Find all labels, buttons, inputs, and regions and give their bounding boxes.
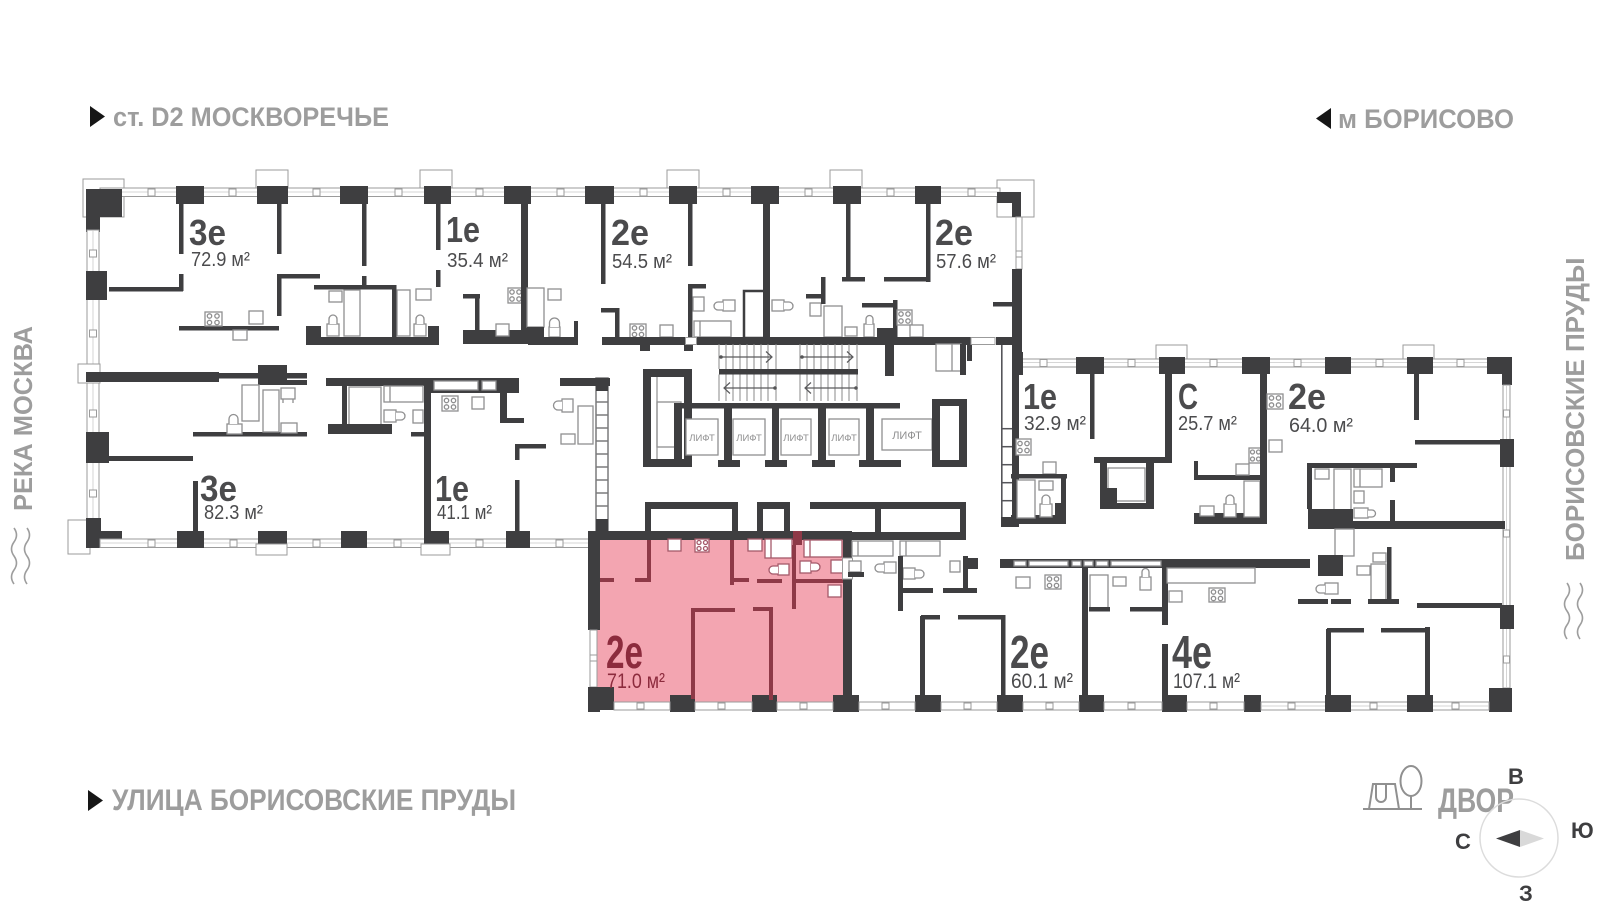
svg-text:2е: 2е [611,212,649,253]
svg-text:ЛИФТ: ЛИФТ [892,430,922,442]
svg-text:41.1 м²: 41.1 м² [437,502,492,524]
svg-text:64.0 м²: 64.0 м² [1289,415,1353,437]
svg-text:ЛИФТ: ЛИФТ [689,433,715,444]
svg-text:Ю: Ю [1571,818,1594,843]
svg-text:ЛИФТ: ЛИФТ [783,433,809,444]
svg-text:УЛИЦА БОРИСОВСКИЕ ПРУДЫ: УЛИЦА БОРИСОВСКИЕ ПРУДЫ [112,784,516,817]
svg-text:РЕКА МОСКВА: РЕКА МОСКВА [8,326,38,511]
svg-text:2е: 2е [1288,376,1326,417]
svg-text:82.3 м²: 82.3 м² [204,502,263,524]
svg-text:72.9 м²: 72.9 м² [191,249,250,271]
svg-text:54.5 м²: 54.5 м² [612,251,672,273]
svg-text:В: В [1508,764,1524,789]
svg-text:32.9 м²: 32.9 м² [1024,413,1086,435]
svg-text:С: С [1455,829,1471,854]
svg-text:1е: 1е [446,209,480,250]
svg-text:57.6 м²: 57.6 м² [936,251,996,273]
svg-text:60.1 м²: 60.1 м² [1011,670,1073,693]
svg-text:35.4 м²: 35.4 м² [447,250,508,272]
svg-text:ДВОР: ДВОР [1438,782,1514,820]
svg-text:З: З [1519,881,1533,906]
svg-text:107.1 м²: 107.1 м² [1173,670,1240,693]
svg-text:2е: 2е [935,212,973,253]
svg-text:25.7 м²: 25.7 м² [1178,413,1237,435]
svg-text:1е: 1е [1023,376,1057,417]
svg-text:ЛИФТ: ЛИФТ [736,433,762,444]
svg-text:3е: 3е [189,212,226,253]
svg-text:С: С [1178,376,1198,417]
svg-text:ст. D2 МОСКВОРЕЧЬЕ: ст. D2 МОСКВОРЕЧЬЕ [113,102,389,132]
svg-text:71.0 м²: 71.0 м² [607,670,665,693]
svg-text:БОРИСОВСКИЕ ПРУДЫ: БОРИСОВСКИЕ ПРУДЫ [1560,258,1590,562]
svg-text:ЛИФТ: ЛИФТ [831,433,857,444]
svg-text:м БОРИСОВО: м БОРИСОВО [1338,104,1514,134]
